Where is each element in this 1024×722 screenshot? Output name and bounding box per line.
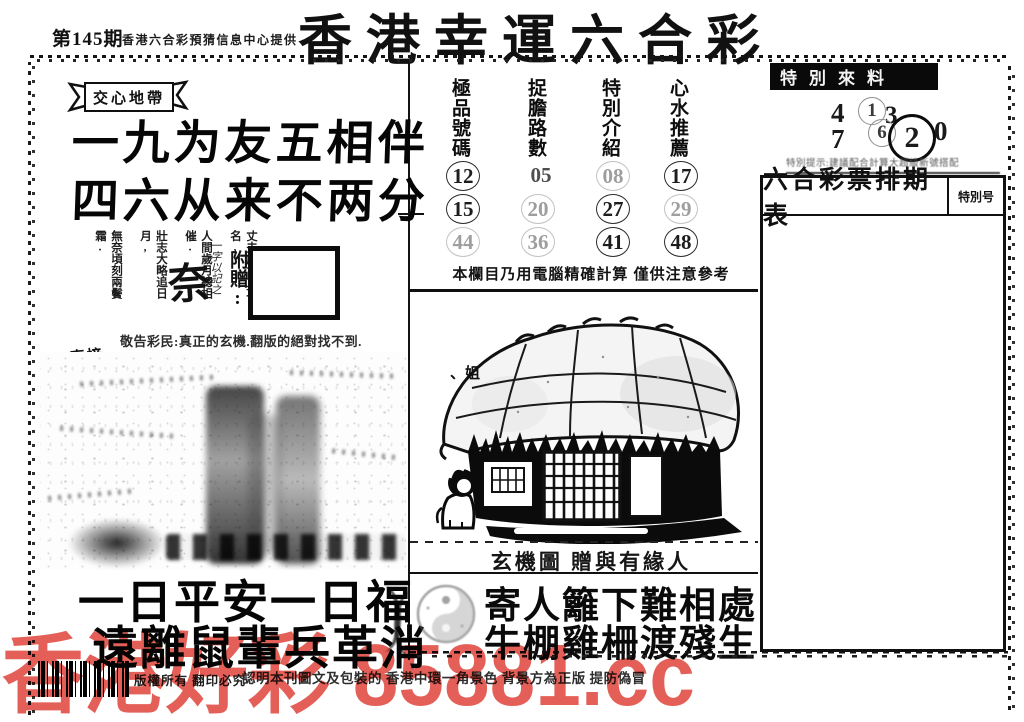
page-title: 香港幸運六合彩	[298, 0, 774, 75]
roof-label: 、姐	[450, 362, 480, 383]
poem-column: 壯志大略追日月,	[137, 230, 169, 318]
schedule-table-header: 六合彩票排期表 特別号	[763, 178, 1003, 216]
tip-number: 44	[446, 227, 480, 257]
ribbon-label: 交心地帶	[84, 82, 174, 112]
tip-number: 17	[664, 161, 698, 191]
ink-smudge	[248, 414, 280, 554]
lottery-flyer-page: 第145期 香港六合彩預猜信息中心提供 香港幸運六合彩 交心地帶 一九为友五相伴…	[0, 0, 1024, 722]
tip-number: 29	[664, 194, 698, 224]
right-border-decoration	[1008, 62, 1015, 710]
header-rule-decoration	[30, 55, 1008, 62]
fleck-mark	[290, 370, 400, 379]
gift-label: 附贈:	[224, 250, 251, 316]
fleck-mark	[48, 488, 138, 501]
advisory-note: 敬告彩民:真正的玄機.翻版的絕對找不到.	[120, 331, 362, 350]
special-banner: 特別來料	[770, 63, 938, 90]
tip-number: 36	[521, 227, 555, 257]
special-digit: 7	[831, 124, 845, 155]
tips-column-header: 捉膽路數	[526, 78, 545, 162]
computer-note: 本欄目乃用電腦精確計算 僅供注意參考	[426, 263, 756, 284]
tips-column-header: 特別介紹	[600, 78, 619, 162]
provider-line: 香港六合彩預猜信息中心提供	[122, 31, 298, 48]
special-banner-label: 特別來料	[780, 64, 896, 89]
fleck-mark	[60, 426, 180, 439]
tip-number: 41	[596, 227, 630, 257]
fleck-mark	[80, 374, 220, 386]
schedule-body-empty	[763, 216, 1003, 687]
issue-number: 第145期	[52, 24, 124, 51]
tip-number: 48	[664, 227, 698, 257]
summary-character: 奈	[166, 249, 212, 313]
tips-column-header: 極品號碼	[450, 78, 469, 162]
ink-blob-row	[166, 534, 406, 560]
fleck-mark	[332, 448, 402, 460]
gift-box	[248, 246, 340, 320]
tip-number: 20	[521, 194, 555, 224]
schedule-title: 六合彩票排期表	[763, 178, 947, 214]
red-watermark: 香港好彩 85881.cc	[2, 604, 695, 722]
ink-blob	[68, 518, 166, 568]
schedule-corner-label: 特別号	[947, 178, 1003, 214]
tip-number: 15	[446, 194, 480, 224]
couplet-line-2: 四六从来不两分	[71, 162, 430, 231]
schedule-table: 六合彩票排期表 特別号	[760, 175, 1006, 652]
tip-number: 27	[596, 194, 630, 224]
tip-number: 08	[596, 161, 630, 191]
mystery-divider-dashed	[410, 541, 758, 543]
house-illustration	[428, 312, 753, 544]
special-digit: 0	[934, 116, 948, 147]
poem-column: 無奈頃刻兩鬢霜.	[92, 230, 124, 318]
summary-note: 一字以記之	[207, 240, 223, 316]
tips-column-header: 心水推薦	[668, 78, 687, 162]
photo-noise-area	[40, 352, 406, 570]
tip-number: 05	[521, 161, 561, 189]
board-divider	[410, 289, 758, 292]
mystery-divider-solid	[410, 572, 758, 574]
tip-number: 12	[446, 161, 480, 191]
